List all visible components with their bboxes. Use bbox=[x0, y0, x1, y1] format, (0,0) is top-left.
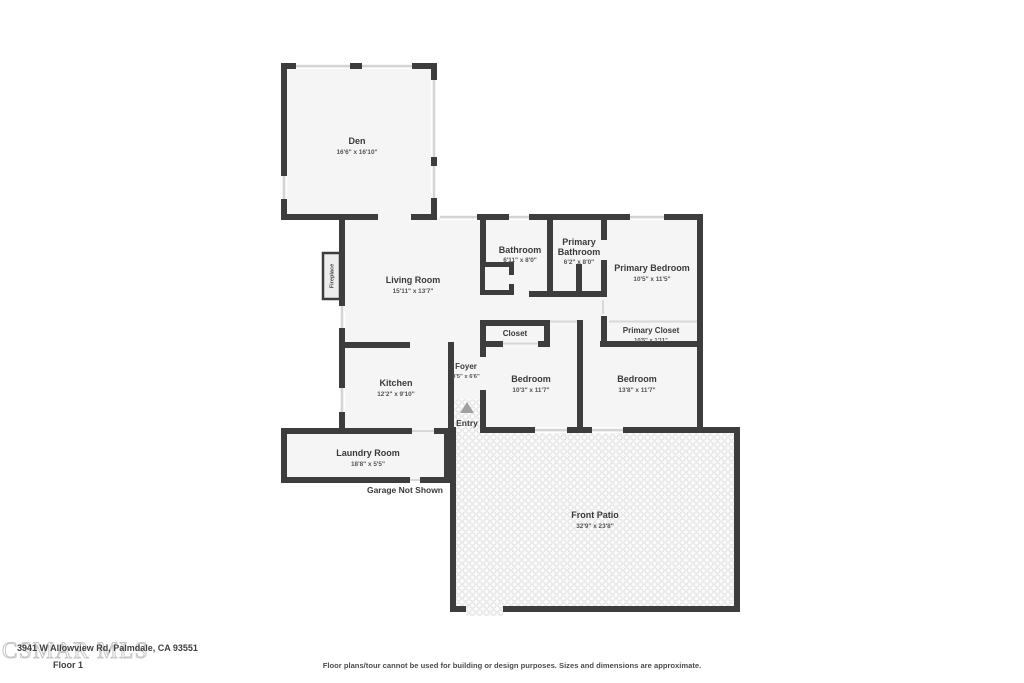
primary-bedroom-label: Primary Bedroom bbox=[614, 263, 690, 273]
primary-bathroom-label-line1: Primary bbox=[562, 237, 596, 247]
bedroom-right-label: Bedroom bbox=[617, 374, 657, 384]
laundry-room-label: Laundry Room bbox=[336, 448, 400, 458]
kitchen-label: Kitchen bbox=[379, 378, 412, 388]
fireplace-label: Fireplace bbox=[330, 264, 336, 289]
laundry-room-dims: 18'8" x 5'5" bbox=[351, 461, 385, 468]
address-text: 3941 W Allowview Rd, Palmdale, CA 93551 bbox=[17, 643, 198, 653]
bathroom-label: Bathroom bbox=[499, 245, 542, 255]
floor-plan-canvas: Fireplace Den 16'6" x 16'10" Living Room… bbox=[0, 0, 1024, 683]
front-patio-dims: 32'9" x 23'8" bbox=[576, 523, 614, 530]
primary-bathroom-label-line2: Bathroom bbox=[558, 247, 601, 257]
bedroom-left-label: Bedroom bbox=[511, 374, 551, 384]
floor-plan-page: Fireplace Den 16'6" x 16'10" Living Room… bbox=[0, 0, 1024, 683]
den-label: Den bbox=[348, 136, 365, 146]
primary-closet-dims: 10'5" x 1'11" bbox=[634, 338, 668, 344]
fireplace: Fireplace bbox=[323, 253, 340, 299]
room-floor-fills bbox=[284, 66, 700, 480]
foyer-label: Foyer bbox=[455, 362, 477, 371]
footer: CSMAR MLS 3941 W Allowview Rd, Palmdale,… bbox=[2, 638, 701, 670]
kitchen-dims: 12'2" x 9'10" bbox=[377, 391, 415, 398]
closet-label: Closet bbox=[503, 329, 528, 338]
bedroom-right-dims: 13'8" x 11'7" bbox=[618, 387, 655, 394]
living-room-label: Living Room bbox=[386, 275, 441, 285]
living-room-dims: 15'11" x 13'7" bbox=[393, 288, 434, 295]
den-dims: 16'6" x 16'10" bbox=[336, 149, 377, 156]
foyer-dims: 3'5" x 6'6" bbox=[452, 374, 480, 380]
primary-closet-label: Primary Closet bbox=[623, 326, 680, 335]
garage-note-label: Garage Not Shown bbox=[367, 485, 443, 495]
bathroom-dims: 6'11" x 8'0" bbox=[503, 257, 537, 264]
primary-bedroom-dims: 10'5" x 11'5" bbox=[633, 276, 670, 283]
bedroom-left-dims: 10'3" x 11'7" bbox=[512, 387, 549, 394]
front-patio-label: Front Patio bbox=[571, 510, 619, 520]
entry-label: Entry bbox=[456, 418, 478, 428]
primary-bathroom-dims: 6'2" x 8'0" bbox=[564, 259, 594, 266]
disclaimer-text: Floor plans/tour cannot be used for buil… bbox=[323, 661, 701, 670]
floor-label: Floor 1 bbox=[53, 660, 83, 670]
